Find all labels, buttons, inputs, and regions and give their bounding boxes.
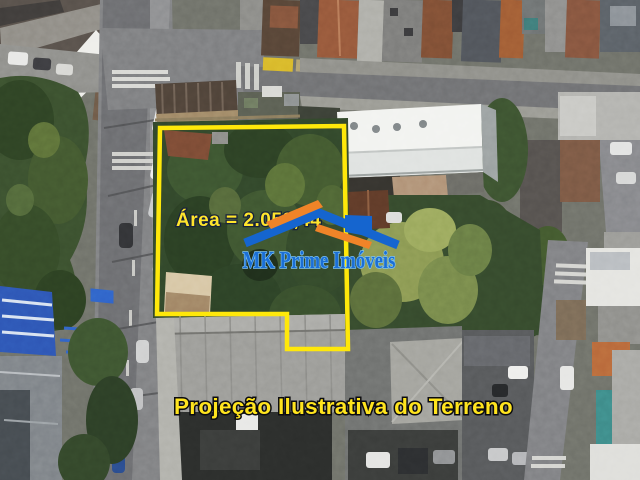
svg-text:Projeção Ilustrativa do Terren: Projeção Ilustrativa do Terreno [174,394,513,419]
svg-text:MK Prime Imóveis: MK Prime Imóveis [243,247,396,274]
